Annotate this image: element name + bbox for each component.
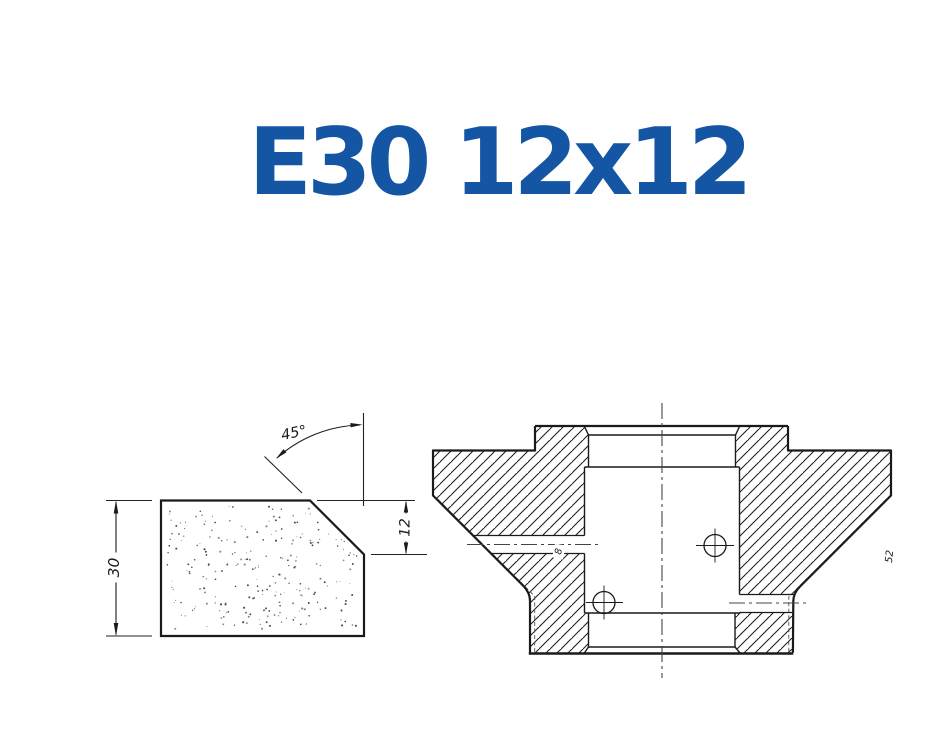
hole-circles bbox=[586, 529, 734, 620]
dim-45deg: 45° bbox=[275, 422, 363, 460]
dim-30-label: 30 bbox=[105, 558, 123, 578]
dim-12: 12 bbox=[398, 501, 414, 555]
dim-12-label: 12 bbox=[398, 518, 414, 536]
dim-45-label: 45° bbox=[280, 423, 308, 444]
page: { "title": { "text": "E30 12x12", "color… bbox=[0, 0, 950, 736]
side-dimension-label: 52 bbox=[884, 550, 896, 564]
wheel-section-view: 8 52 bbox=[433, 403, 896, 678]
segment-profile-view: 30 12 45° bbox=[105, 413, 427, 636]
dim-30: 30 bbox=[105, 501, 123, 637]
technical-drawing: 30 12 45° bbox=[0, 0, 950, 736]
segment-body bbox=[161, 501, 364, 637]
side-dimension-label-group: 52 bbox=[884, 550, 896, 564]
